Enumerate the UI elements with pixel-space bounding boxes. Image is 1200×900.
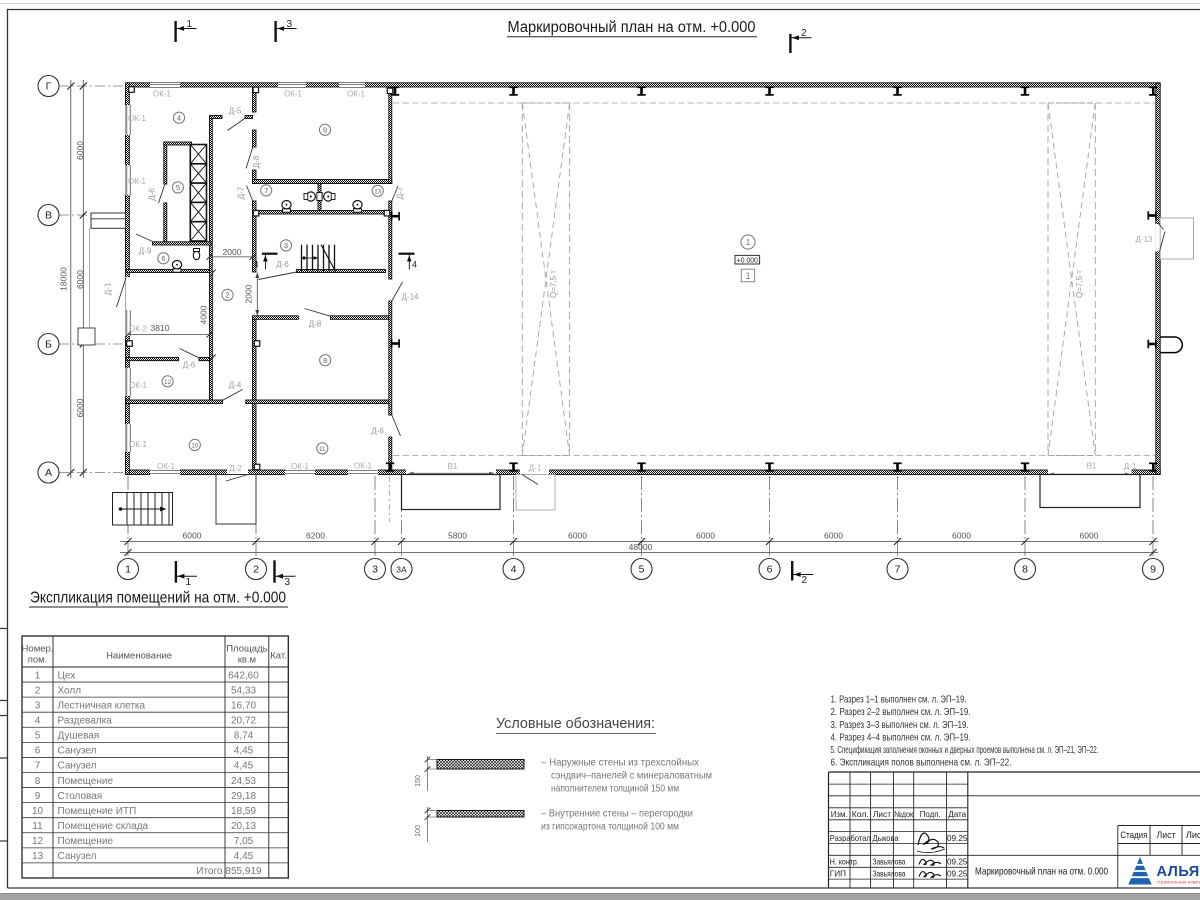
svg-text:Маркировочный план на отм. 0.0: Маркировочный план на отм. 0.000 xyxy=(975,865,1108,877)
svg-text:20,72: 20,72 xyxy=(231,716,256,727)
svg-text:29,18: 29,18 xyxy=(231,791,256,802)
svg-text:1: 1 xyxy=(186,577,192,588)
svg-text:3: 3 xyxy=(372,564,378,576)
svg-text:7: 7 xyxy=(264,186,268,195)
svg-text:13: 13 xyxy=(374,188,381,195)
svg-text:5: 5 xyxy=(35,731,41,742)
svg-text:3. Разрез 3–3 выполнен см. л.: 3. Разрез 3–3 выполнен см. л. ЭП–19. xyxy=(831,719,969,731)
svg-text:Q=7,5 т: Q=7,5 т xyxy=(1075,270,1084,298)
svg-text:Д-9: Д-9 xyxy=(139,247,152,256)
svg-text:4. Разрез 4–4 выполнен см. л.: 4. Разрез 4–4 выполнен см. л. ЭП–19. xyxy=(831,731,971,743)
svg-text:Д-5: Д-5 xyxy=(229,107,242,116)
svg-text:Д-6: Д-6 xyxy=(183,361,196,370)
svg-text:ОК-2: ОК-2 xyxy=(129,325,148,334)
svg-text:Г: Г xyxy=(46,81,52,93)
svg-text:6: 6 xyxy=(161,254,165,263)
svg-text:6000: 6000 xyxy=(824,531,843,541)
svg-text:– Внутренние стены – перегород: – Внутренние стены – перегородки xyxy=(541,809,693,820)
svg-text:6000: 6000 xyxy=(696,531,715,541)
svg-text:сэндвич–панелей с минераловатн: сэндвич–панелей с минераловатным xyxy=(551,771,712,782)
svg-text:Помещение ИТП: Помещение ИТП xyxy=(58,806,137,817)
svg-text:10: 10 xyxy=(191,443,198,450)
svg-text:Д-7: Д-7 xyxy=(396,186,405,199)
svg-text:2: 2 xyxy=(225,291,229,300)
svg-text:18000: 18000 xyxy=(59,267,69,291)
svg-text:ОК-1: ОК-1 xyxy=(153,89,172,98)
svg-text:АЛЬЯНС: АЛЬЯНС xyxy=(1157,864,1200,880)
svg-text:6000: 6000 xyxy=(1080,531,1099,541)
svg-text:3: 3 xyxy=(284,241,288,250)
svg-text:6000: 6000 xyxy=(75,141,85,160)
svg-text:5: 5 xyxy=(176,183,180,192)
svg-text:ОК-1: ОК-1 xyxy=(157,462,176,471)
svg-text:6: 6 xyxy=(767,564,773,576)
svg-text:5. Спецификация заполнения око: 5. Спецификация заполнения оконных и две… xyxy=(831,744,1099,756)
svg-text:Завьялова: Завьялова xyxy=(873,870,906,879)
svg-text:1: 1 xyxy=(746,237,751,247)
svg-text:1: 1 xyxy=(125,564,131,576)
svg-text:из гипсокартона толщиной 100 м: из гипсокартона толщиной 100 мм xyxy=(541,822,679,833)
svg-text:Номер.: Номер. xyxy=(22,644,54,655)
svg-text:16,70: 16,70 xyxy=(231,700,256,711)
svg-text:54,33: 54,33 xyxy=(231,685,256,696)
svg-text:3: 3 xyxy=(35,700,41,711)
svg-text:Кол.: Кол. xyxy=(852,809,869,819)
svg-text:Д-1: Д-1 xyxy=(1124,462,1137,471)
svg-text:+0.000: +0.000 xyxy=(737,255,758,264)
svg-text:09.25: 09.25 xyxy=(947,870,968,879)
svg-text:1. Разрез 1–1 выполнен см. л.: 1. Разрез 1–1 выполнен см. л. ЭП–19. xyxy=(831,694,967,706)
svg-text:100: 100 xyxy=(415,825,422,837)
svg-text:09.25: 09.25 xyxy=(947,834,968,843)
svg-text:Д-8: Д-8 xyxy=(252,155,261,168)
svg-text:1: 1 xyxy=(187,19,193,30)
svg-text:ОК-1: ОК-1 xyxy=(354,462,373,471)
svg-text:Лист: Лист xyxy=(873,809,891,819)
svg-text:ОК-1: ОК-1 xyxy=(347,89,366,98)
svg-text:2: 2 xyxy=(802,575,808,586)
svg-text:Д-7: Д-7 xyxy=(237,186,246,199)
svg-text:Помещение: Помещение xyxy=(58,836,114,847)
svg-text:4: 4 xyxy=(35,716,41,727)
svg-text:наполнителем толщиной 150 мм: наполнителем толщиной 150 мм xyxy=(551,784,679,795)
svg-text:6000: 6000 xyxy=(952,531,971,541)
svg-text:7: 7 xyxy=(895,564,901,576)
svg-text:ОК-1: ОК-1 xyxy=(129,440,148,449)
svg-text:Дыкова: Дыкова xyxy=(873,834,899,843)
svg-text:7,05: 7,05 xyxy=(234,836,254,847)
svg-text:Д-2: Д-2 xyxy=(229,464,242,473)
svg-text:1: 1 xyxy=(745,271,750,281)
svg-text:1: 1 xyxy=(35,670,41,681)
svg-text:10: 10 xyxy=(32,806,44,817)
svg-text:8,74: 8,74 xyxy=(234,731,254,742)
svg-text:48000: 48000 xyxy=(629,542,653,552)
svg-text:строительная компания: строительная компания xyxy=(1157,880,1200,885)
svg-text:ОК-1: ОК-1 xyxy=(128,177,147,186)
svg-text:В: В xyxy=(45,210,52,222)
svg-text:Д-1: Д-1 xyxy=(104,282,113,295)
svg-text:Подп.: Подп. xyxy=(920,809,941,819)
svg-text:ОК-1: ОК-1 xyxy=(129,381,148,390)
svg-text:5: 5 xyxy=(639,564,645,576)
svg-text:Завьялова: Завьялова xyxy=(873,857,906,866)
svg-text:А: А xyxy=(45,467,52,479)
svg-text:2: 2 xyxy=(253,564,259,576)
svg-text:Маркировочный план на отм. +0.: Маркировочный план на отм. +0.000 xyxy=(508,19,756,36)
svg-text:4,45: 4,45 xyxy=(234,851,254,862)
svg-text:ОК-1: ОК-1 xyxy=(291,462,310,471)
svg-text:Д-6: Д-6 xyxy=(148,188,157,201)
svg-text:4,45: 4,45 xyxy=(234,761,254,772)
svg-text:3: 3 xyxy=(287,19,293,30)
svg-text:2: 2 xyxy=(801,28,807,39)
svg-text:12: 12 xyxy=(32,836,44,847)
svg-text:3: 3 xyxy=(285,577,291,588)
svg-text:Д-14: Д-14 xyxy=(402,293,420,302)
svg-text:4: 4 xyxy=(412,260,417,270)
svg-text:09.25: 09.25 xyxy=(947,857,968,866)
svg-text:6000: 6000 xyxy=(183,531,202,541)
svg-text:2. Разрез 2–2 выполнен см. л.: 2. Разрез 2–2 выполнен см. л. ЭП–19. xyxy=(831,706,971,718)
svg-text:Помещение: Помещение xyxy=(58,776,114,787)
svg-text:150: 150 xyxy=(415,775,422,787)
svg-text:Д-8: Д-8 xyxy=(309,320,322,329)
svg-text:5800: 5800 xyxy=(448,531,467,541)
svg-text:ОК-1: ОК-1 xyxy=(284,89,303,98)
svg-text:Столовая: Столовая xyxy=(58,791,103,802)
svg-text:В1: В1 xyxy=(448,462,458,471)
svg-text:4,45: 4,45 xyxy=(234,746,254,757)
svg-text:4: 4 xyxy=(511,564,517,576)
svg-text:8: 8 xyxy=(35,776,41,787)
svg-text:18,59: 18,59 xyxy=(231,806,256,817)
svg-text:Душевая: Душевая xyxy=(58,731,100,742)
svg-text:855,919: 855,919 xyxy=(225,866,262,877)
svg-text:4: 4 xyxy=(177,113,181,122)
svg-text:Итого: Итого xyxy=(196,866,223,877)
svg-text:– Наружные стены из трехслойны: – Наружные стены из трехслойных xyxy=(541,758,699,769)
svg-text:Н. контр.: Н. контр. xyxy=(830,857,859,866)
svg-text:4000: 4000 xyxy=(199,305,209,324)
svg-text:В1: В1 xyxy=(1087,462,1097,471)
svg-text:3А: 3А xyxy=(396,565,407,575)
svg-text:Санузел: Санузел xyxy=(58,746,97,757)
svg-text:Лист: Лист xyxy=(1157,830,1176,840)
svg-text:9: 9 xyxy=(1150,564,1156,576)
svg-text:Б: Б xyxy=(45,339,52,351)
svg-text:Кат.: Кат. xyxy=(270,651,287,662)
svg-text:2000: 2000 xyxy=(223,247,242,257)
svg-text:Раздевалка: Раздевалка xyxy=(58,716,113,727)
svg-text:6000: 6000 xyxy=(75,270,85,289)
svg-text:Q=7,5 т: Q=7,5 т xyxy=(549,270,558,298)
svg-text:Площадь: Площадь xyxy=(226,644,267,655)
svg-text:Д-6: Д-6 xyxy=(371,427,384,436)
svg-text:7: 7 xyxy=(35,761,41,772)
svg-text:8: 8 xyxy=(1022,564,1028,576)
svg-text:20,13: 20,13 xyxy=(231,821,256,832)
svg-text:12: 12 xyxy=(164,379,171,386)
svg-text:Д-6: Д-6 xyxy=(276,260,289,269)
svg-text:ГИП: ГИП xyxy=(830,870,846,879)
svg-text:6: 6 xyxy=(35,746,41,757)
svg-text:Наименование: Наименование xyxy=(106,651,172,662)
svg-text:13: 13 xyxy=(32,851,44,862)
svg-text:пом.: пом. xyxy=(28,655,48,666)
svg-text:Д-1: Д-1 xyxy=(529,463,542,472)
svg-text:6000: 6000 xyxy=(75,398,85,417)
svg-text:Д-4: Д-4 xyxy=(229,381,242,390)
svg-text:№док: №док xyxy=(894,809,913,819)
svg-text:3810: 3810 xyxy=(151,323,170,333)
svg-text:Дата: Дата xyxy=(948,809,966,819)
svg-text:8: 8 xyxy=(323,356,327,365)
svg-text:2000: 2000 xyxy=(244,284,254,303)
svg-text:Санузел: Санузел xyxy=(58,851,97,862)
svg-text:Д-13: Д-13 xyxy=(1136,235,1154,244)
svg-text:11: 11 xyxy=(319,446,326,453)
svg-text:Условные обозначения:: Условные обозначения: xyxy=(496,716,655,732)
svg-text:кв.м: кв.м xyxy=(238,655,256,666)
svg-text:Экспликация помещений на отм.: Экспликация помещений на отм. +0.000 xyxy=(30,590,286,607)
svg-text:Лестничная клетка: Лестничная клетка xyxy=(58,700,146,711)
svg-text:9: 9 xyxy=(323,125,327,134)
svg-text:6. Экспликация полов выполнена: 6. Экспликация полов выполнена см. л. ЭП… xyxy=(831,757,1012,769)
svg-text:Стадия: Стадия xyxy=(1120,830,1147,840)
svg-text:2: 2 xyxy=(35,685,41,696)
svg-text:ОК-1: ОК-1 xyxy=(128,114,147,123)
svg-text:9: 9 xyxy=(35,791,41,802)
svg-text:Холл: Холл xyxy=(58,685,82,696)
svg-text:Помещение склада: Помещение склада xyxy=(58,821,149,832)
svg-text:Изм.: Изм. xyxy=(831,809,848,819)
svg-text:24,53: 24,53 xyxy=(231,776,256,787)
svg-text:Цех: Цех xyxy=(58,670,76,681)
svg-text:642,60: 642,60 xyxy=(228,670,259,681)
svg-text:Разработал: Разработал xyxy=(830,834,871,843)
svg-text:Листов: Листов xyxy=(1186,830,1200,840)
svg-text:6000: 6000 xyxy=(568,531,587,541)
svg-text:Санузел: Санузел xyxy=(58,761,97,772)
svg-text:11: 11 xyxy=(32,821,43,832)
svg-text:6200: 6200 xyxy=(306,531,325,541)
